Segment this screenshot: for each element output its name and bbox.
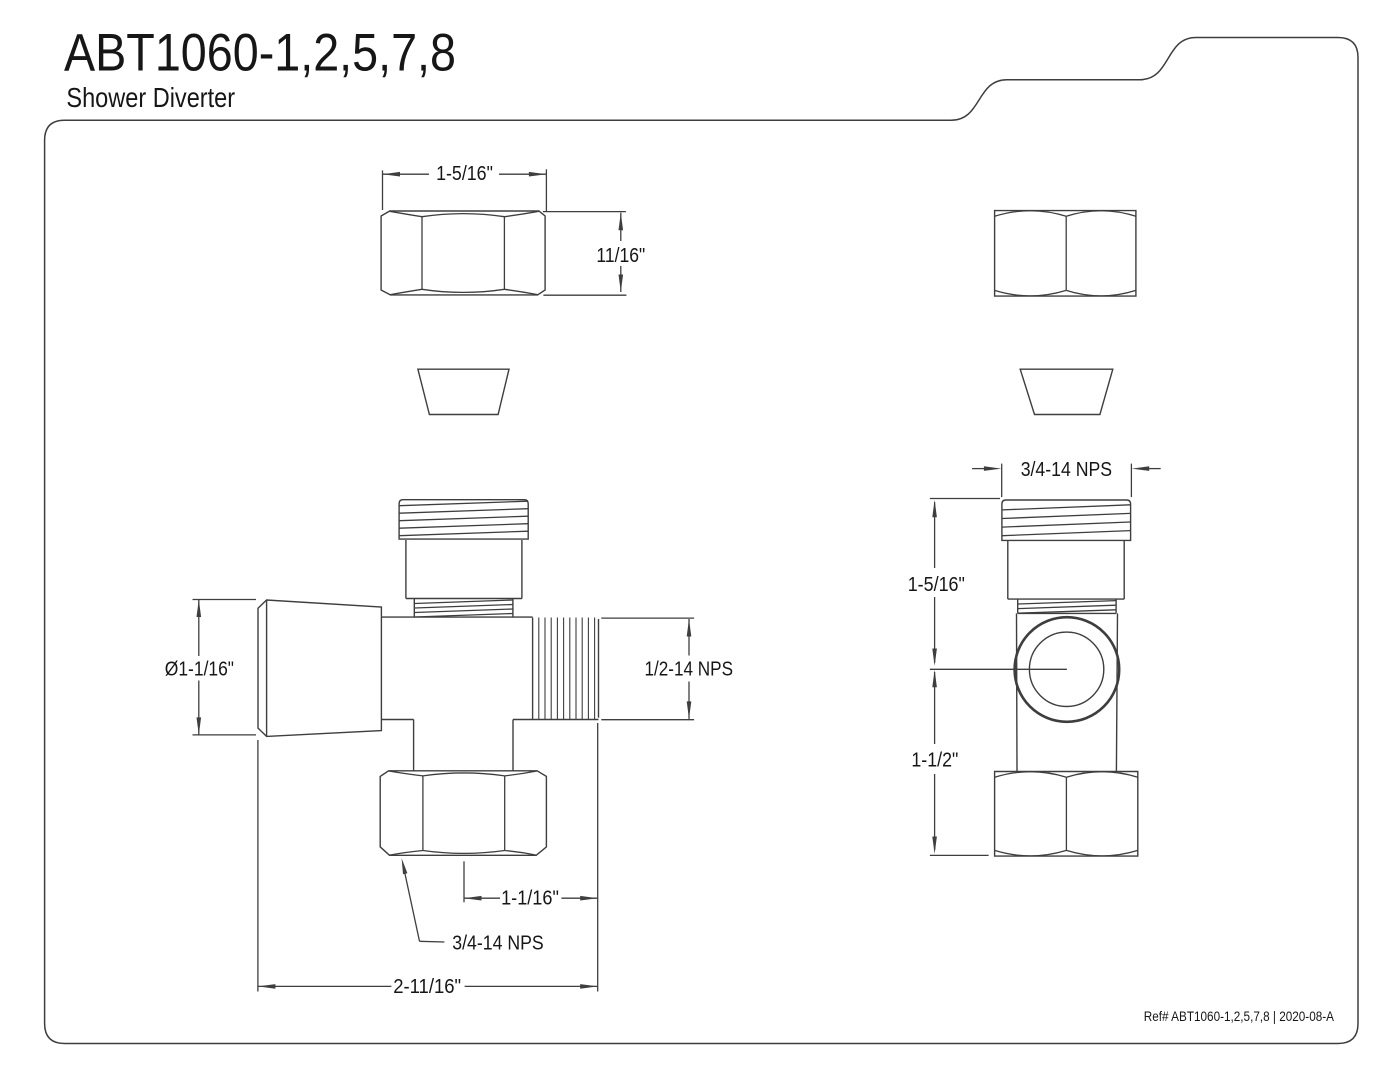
svg-text:1-1/2": 1-1/2": [911, 750, 958, 772]
svg-text:3/4-14 NPS: 3/4-14 NPS: [452, 933, 543, 955]
svg-text:Ref# ABT1060-1,2,5,7,8 | 2020-: Ref# ABT1060-1,2,5,7,8 | 2020-08-A: [1144, 1009, 1335, 1024]
svg-text:ABT1060-1,2,5,7,8: ABT1060-1,2,5,7,8: [64, 24, 456, 83]
svg-text:1/2-14 NPS: 1/2-14 NPS: [645, 659, 734, 681]
svg-text:1-5/16": 1-5/16": [908, 574, 965, 596]
svg-text:Ø1-1/16": Ø1-1/16": [165, 658, 234, 680]
svg-text:Shower Diverter: Shower Diverter: [66, 82, 235, 113]
svg-text:1-1/16": 1-1/16": [501, 888, 559, 910]
svg-text:1-5/16": 1-5/16": [436, 163, 493, 185]
svg-text:11/16": 11/16": [596, 245, 645, 267]
svg-text:3/4-14 NPS: 3/4-14 NPS: [1021, 459, 1112, 481]
svg-text:2-11/16": 2-11/16": [393, 976, 461, 998]
